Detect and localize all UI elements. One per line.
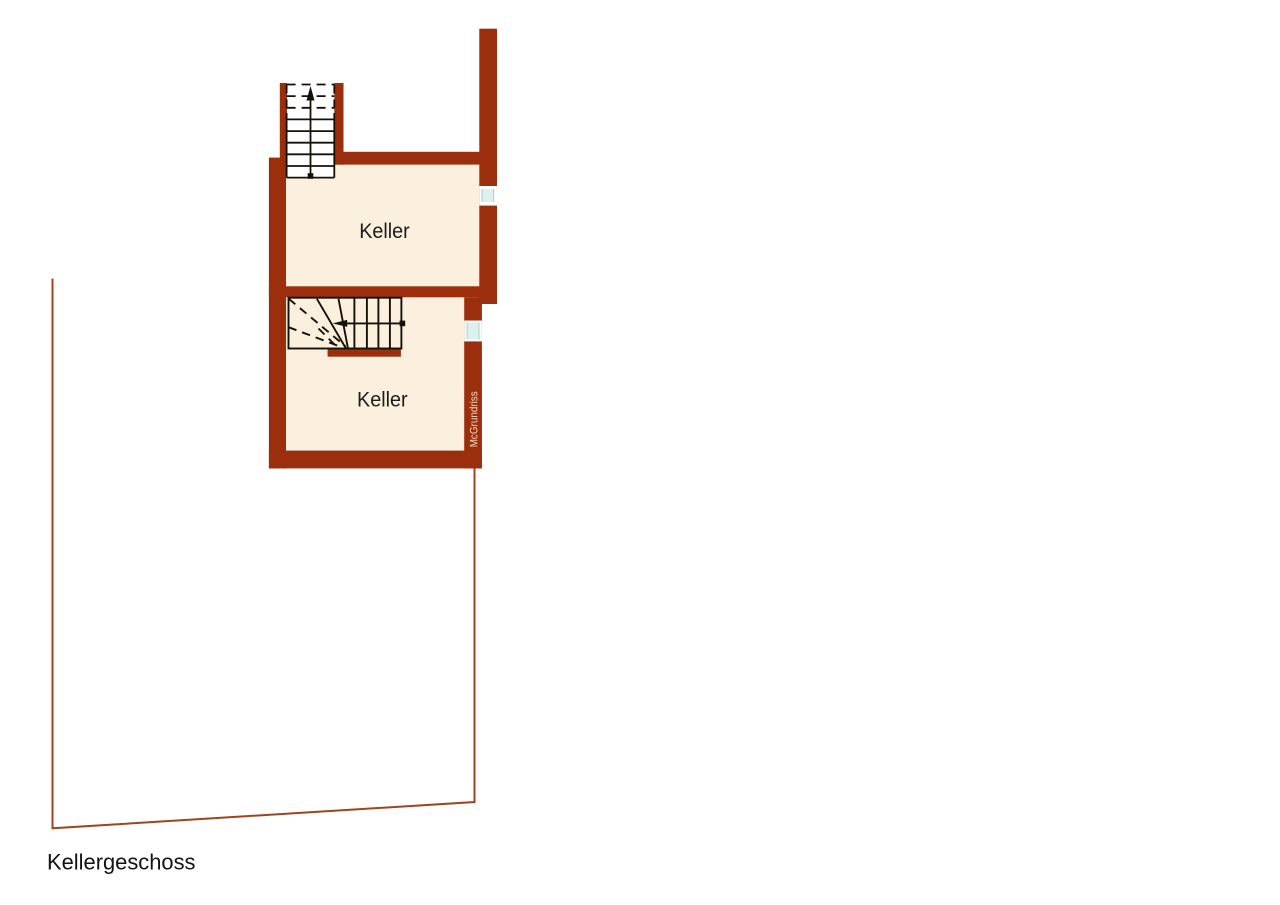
svg-text:Keller: Keller xyxy=(359,220,410,243)
svg-text:Keller: Keller xyxy=(357,389,408,412)
svg-text:McGrundriss: McGrundriss xyxy=(468,391,480,447)
svg-text:Kellergeschoss: Kellergeschoss xyxy=(47,850,196,875)
